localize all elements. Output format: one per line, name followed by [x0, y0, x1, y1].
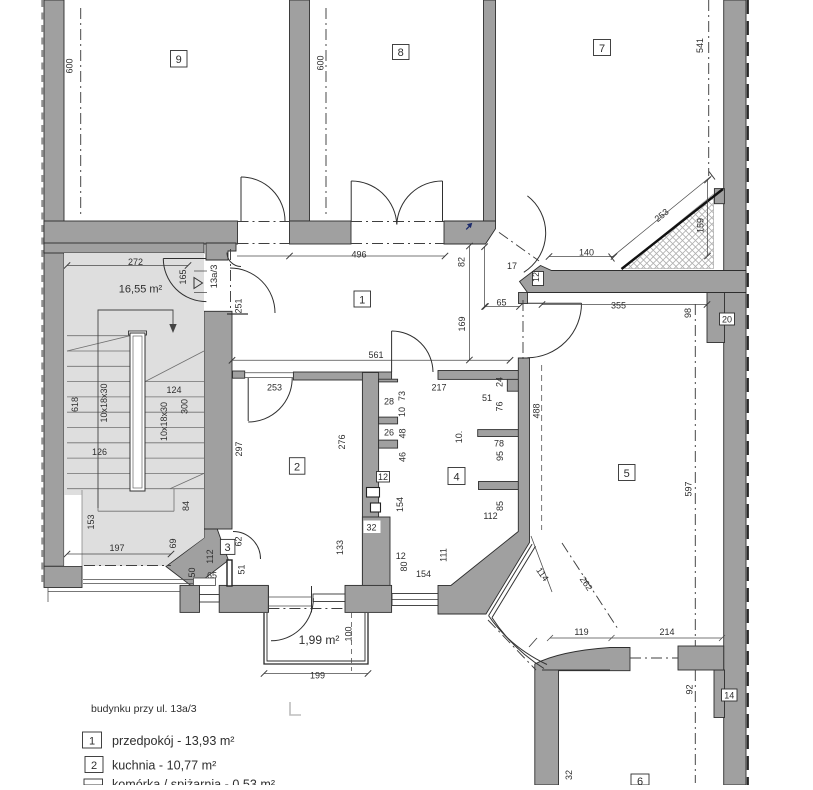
svg-text:82: 82: [457, 257, 467, 267]
svg-text:46: 46: [398, 452, 408, 462]
svg-text:1,99 m²: 1,99 m²: [299, 633, 340, 647]
svg-text:541: 541: [695, 38, 705, 53]
svg-text:600: 600: [65, 58, 75, 73]
svg-text:154: 154: [395, 497, 405, 512]
svg-text:3: 3: [225, 542, 231, 554]
svg-text:10.: 10.: [454, 431, 464, 444]
svg-text:100: 100: [344, 626, 354, 641]
svg-text:9: 9: [176, 54, 182, 66]
svg-text:197: 197: [109, 543, 124, 553]
svg-text:159: 159: [696, 218, 706, 233]
svg-text:13a/3: 13a/3: [209, 265, 220, 289]
svg-text:24: 24: [495, 377, 505, 387]
svg-text:28: 28: [384, 397, 394, 407]
svg-text:214: 214: [659, 627, 674, 637]
svg-text:276: 276: [337, 434, 347, 449]
svg-text:1: 1: [89, 736, 95, 748]
svg-text:12: 12: [396, 551, 406, 561]
svg-text:kuchnia - 10,77 m²: kuchnia - 10,77 m²: [112, 759, 216, 773]
svg-text:253: 253: [267, 383, 282, 393]
svg-text:20: 20: [722, 315, 732, 325]
svg-text:355: 355: [611, 301, 626, 311]
svg-text:124: 124: [166, 385, 181, 395]
svg-text:597: 597: [684, 481, 694, 496]
svg-text:119: 119: [574, 627, 588, 637]
svg-text:169: 169: [457, 316, 467, 331]
svg-text:14: 14: [724, 691, 734, 701]
svg-text:126: 126: [92, 447, 107, 457]
svg-text:komórka / spiżarnia - 0,53 m²: komórka / spiżarnia - 0,53 m²: [112, 778, 275, 786]
svg-text:111: 111: [439, 548, 449, 562]
svg-text:251: 251: [234, 298, 244, 313]
svg-text:51: 51: [482, 393, 492, 403]
svg-text:561: 561: [368, 350, 383, 360]
svg-text:85: 85: [495, 501, 505, 511]
svg-text:73: 73: [397, 391, 407, 401]
svg-text:budynku przy ul. 13a/3: budynku przy ul. 13a/3: [91, 703, 197, 715]
svg-text:17: 17: [507, 261, 517, 271]
svg-text:16,55 m²: 16,55 m²: [119, 284, 163, 296]
svg-text:26: 26: [384, 428, 394, 438]
svg-text:272: 272: [128, 257, 143, 267]
svg-text:8: 8: [398, 47, 404, 59]
svg-text:1: 1: [359, 295, 365, 307]
svg-text:140: 140: [579, 248, 594, 258]
svg-text:7: 7: [599, 43, 605, 55]
svg-text:51: 51: [237, 564, 247, 574]
svg-text:600: 600: [316, 55, 326, 70]
svg-text:153: 153: [86, 514, 96, 529]
svg-text:199: 199: [310, 671, 325, 681]
svg-text:6: 6: [637, 776, 643, 785]
svg-text:12: 12: [378, 472, 388, 482]
svg-text:5: 5: [624, 468, 630, 480]
svg-text:50: 50: [187, 567, 197, 577]
svg-text:217: 217: [431, 383, 446, 393]
svg-text:10x18x30: 10x18x30: [99, 383, 109, 422]
svg-text:78: 78: [494, 439, 504, 449]
svg-text:92: 92: [685, 684, 695, 694]
svg-text:przedpokój - 13,93 m²: przedpokój - 13,93 m²: [112, 734, 235, 748]
svg-text:2: 2: [294, 462, 300, 474]
svg-text:10: 10: [397, 407, 407, 417]
svg-text:32: 32: [366, 523, 376, 533]
svg-text:32: 32: [564, 770, 574, 780]
svg-text:112: 112: [483, 511, 497, 521]
svg-text:10x18x30: 10x18x30: [159, 402, 169, 441]
svg-text:496: 496: [351, 250, 366, 260]
svg-text:618: 618: [70, 397, 80, 412]
svg-text:488: 488: [532, 403, 542, 418]
svg-text:62: 62: [234, 536, 244, 546]
svg-text:297: 297: [234, 441, 244, 456]
svg-text:69: 69: [168, 538, 178, 548]
svg-text:95: 95: [495, 451, 505, 461]
svg-text:2: 2: [91, 760, 97, 772]
svg-text:112: 112: [205, 549, 215, 563]
svg-text:48: 48: [398, 428, 408, 438]
svg-text:84: 84: [181, 501, 191, 511]
svg-text:4: 4: [453, 472, 459, 484]
svg-text:76: 76: [495, 401, 505, 411]
svg-text:65: 65: [496, 298, 506, 308]
svg-text:154: 154: [416, 569, 431, 579]
svg-text:80: 80: [399, 561, 409, 571]
svg-text:165: 165: [178, 269, 188, 284]
svg-text:12: 12: [531, 272, 541, 282]
svg-text:98: 98: [683, 308, 693, 318]
svg-text:300: 300: [180, 399, 190, 414]
svg-text:133: 133: [335, 540, 345, 555]
